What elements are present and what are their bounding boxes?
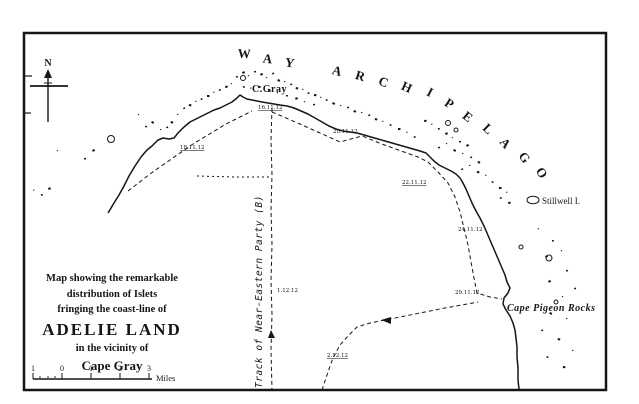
- islet-speck: [84, 158, 86, 160]
- islet-speck: [485, 175, 487, 176]
- islet-speck: [166, 126, 168, 128]
- islet-speck: [242, 71, 245, 74]
- scale-subdot: [39, 376, 41, 378]
- islet-speck: [277, 79, 280, 82]
- islet-speck: [313, 104, 315, 106]
- arc-letter: O: [533, 164, 551, 181]
- track-date-labels: 18.11.1216.11.1220.11.1222.11.1224.11.12…: [180, 105, 483, 359]
- date-label: 18.11.12: [180, 145, 205, 151]
- title-adelie-land: ADELIE LAND: [34, 321, 190, 338]
- islet-speck: [398, 128, 401, 130]
- islet-speck: [286, 95, 288, 97]
- islet-speck: [195, 101, 197, 102]
- islet-speck: [566, 318, 567, 319]
- islet-speck: [57, 150, 59, 151]
- islet-speck: [361, 112, 362, 113]
- islet-speck: [272, 73, 274, 75]
- islet-speck: [290, 83, 292, 85]
- arc-letter: H: [399, 78, 414, 96]
- track-west-horizontal: [197, 176, 270, 177]
- arc-letter: W: [237, 46, 251, 62]
- islet-speck: [304, 101, 306, 102]
- islet-speck: [558, 338, 561, 341]
- islet-speck: [307, 92, 309, 94]
- islet-speck: [414, 136, 416, 138]
- arc-letter: A: [331, 62, 344, 79]
- map-page: N WAYARCHIPELAGO 18.11.1216.11.1220.11.1…: [0, 0, 639, 404]
- date-label: 29.11.12: [455, 290, 480, 296]
- islet-speck: [248, 75, 250, 76]
- islet-speck: [477, 161, 480, 164]
- islet-speck: [574, 288, 576, 290]
- islet-speck: [260, 73, 263, 76]
- islet-speck: [461, 168, 463, 170]
- track-east-coastal: [272, 112, 502, 299]
- islet-speck: [446, 143, 447, 144]
- islet-speck: [566, 270, 568, 272]
- islet-circle: [519, 245, 523, 249]
- islet-speck: [375, 118, 378, 120]
- title-line-5: in the vicinity of: [34, 344, 190, 355]
- scale-subdot: [47, 376, 49, 378]
- islet-speck: [138, 114, 139, 115]
- title-line-3: fringing the coast-line of: [34, 305, 190, 316]
- islet-speck: [508, 202, 511, 204]
- arc-letter: R: [354, 67, 368, 84]
- islet-speck: [548, 280, 551, 283]
- islet-speck: [219, 89, 221, 91]
- islet-speck: [92, 149, 95, 152]
- islet-speck: [466, 144, 469, 147]
- islet-speck: [406, 132, 408, 133]
- islet-speck: [347, 106, 349, 108]
- islet-speck: [562, 296, 563, 297]
- islet-speck: [499, 187, 502, 189]
- scale-subdot: [54, 376, 56, 378]
- title-cape-gray: Cape Gray: [34, 359, 190, 372]
- date-label: 2.12.12: [327, 353, 348, 359]
- arc-letter: C: [377, 73, 391, 90]
- islet-speck: [538, 228, 540, 230]
- islet-speck: [563, 366, 566, 368]
- islet-speck: [243, 86, 245, 88]
- track-arrows: [268, 317, 391, 338]
- track-arrow-up: [268, 330, 275, 338]
- islet-speck: [445, 132, 448, 135]
- date-label: 16.11.12: [258, 105, 283, 111]
- date-label: 24.11.12: [458, 227, 483, 233]
- islet-speck: [453, 149, 456, 152]
- islet-speck: [320, 97, 322, 98]
- arc-letter: P: [442, 95, 457, 112]
- islet-speck: [200, 98, 202, 100]
- north-label: N: [44, 58, 52, 69]
- arc-letter: A: [262, 51, 274, 67]
- islet-speck: [572, 350, 573, 351]
- islet-speck: [326, 99, 328, 101]
- islet-speck: [382, 121, 383, 122]
- islet-speck: [332, 102, 335, 105]
- arc-letter: L: [480, 120, 497, 137]
- islet-speck: [177, 114, 178, 115]
- islet-speck: [477, 171, 480, 173]
- islet-speck: [183, 107, 185, 109]
- title-block: Map showing the remarkable distribution …: [34, 274, 190, 372]
- islet-circle: [546, 255, 552, 261]
- islet-speck: [541, 329, 543, 331]
- scale-miles-label: Miles: [156, 373, 175, 383]
- date-label: 22.11.12: [402, 180, 427, 186]
- islet-speck: [462, 153, 463, 154]
- islet-speck: [33, 189, 35, 191]
- title-line-2: distribution of Islets: [34, 290, 190, 301]
- date-label: 1.12.12: [277, 288, 298, 294]
- arc-letter: I: [424, 84, 436, 100]
- islet-speck: [561, 250, 563, 251]
- islet-speck: [284, 81, 285, 82]
- islet-speck: [353, 110, 356, 113]
- islet-speck: [491, 181, 493, 183]
- islet-speck: [295, 97, 298, 100]
- islet-speck: [160, 129, 161, 130]
- islet-speck: [231, 83, 233, 85]
- islet-speck: [236, 76, 238, 78]
- islet-speck: [207, 95, 210, 97]
- islet-speck: [189, 104, 192, 106]
- islet-speck: [254, 71, 256, 73]
- islet-speck: [431, 123, 433, 125]
- arc-letter: Y: [284, 54, 296, 70]
- islet-speck: [368, 114, 370, 116]
- islet-speck: [151, 121, 154, 124]
- islet-circle: [446, 121, 451, 126]
- islet-speck: [213, 91, 215, 92]
- islet-speck: [500, 197, 502, 199]
- islet-speck: [389, 124, 391, 126]
- islet-speck: [314, 94, 317, 96]
- islet-speck: [546, 356, 548, 358]
- arc-letter: E: [460, 108, 476, 125]
- stillwell-island-label: Stillwell I.: [542, 196, 580, 206]
- track-party-label: Track of Near-Eastern Party (B): [254, 195, 265, 388]
- islet-speck: [552, 240, 554, 242]
- north-arrow: N: [30, 58, 68, 122]
- track-vertical: [271, 108, 272, 390]
- islet-speck: [470, 156, 472, 158]
- track-arrow-left: [381, 317, 391, 324]
- islet-speck: [266, 77, 267, 78]
- date-label: 20.11.12: [333, 129, 358, 135]
- arc-letter: G: [516, 149, 534, 166]
- islet-speck: [296, 87, 299, 90]
- islet-speck: [459, 141, 461, 143]
- archipelago-arc-title: WAYARCHIPELAGO: [237, 46, 551, 181]
- islet-speck: [452, 137, 454, 138]
- islet-speck: [340, 105, 341, 106]
- arc-letter: A: [497, 134, 515, 151]
- islet-speck: [225, 86, 228, 88]
- islet-speck: [438, 128, 440, 130]
- islet-speck: [469, 165, 470, 166]
- track-southern: [322, 302, 478, 390]
- stillwell-island-outline: [527, 196, 539, 204]
- islet-speck: [438, 147, 440, 149]
- islet-circle: [454, 128, 458, 132]
- cape-pigeon-rocks-label: Cape Pigeon Rocks: [507, 303, 596, 314]
- cape-gray-label: C.Gray: [252, 84, 287, 95]
- islet-speck: [506, 191, 508, 192]
- islet-circle: [108, 136, 115, 143]
- title-line-1: Map showing the remarkable: [34, 274, 190, 285]
- islet-speck: [41, 194, 43, 196]
- islet-speck: [424, 120, 427, 122]
- islet-speck: [170, 121, 173, 124]
- islet-speck: [302, 89, 303, 90]
- islet-speck: [145, 126, 147, 128]
- islet-speck: [48, 187, 51, 190]
- islet-circle: [241, 76, 246, 81]
